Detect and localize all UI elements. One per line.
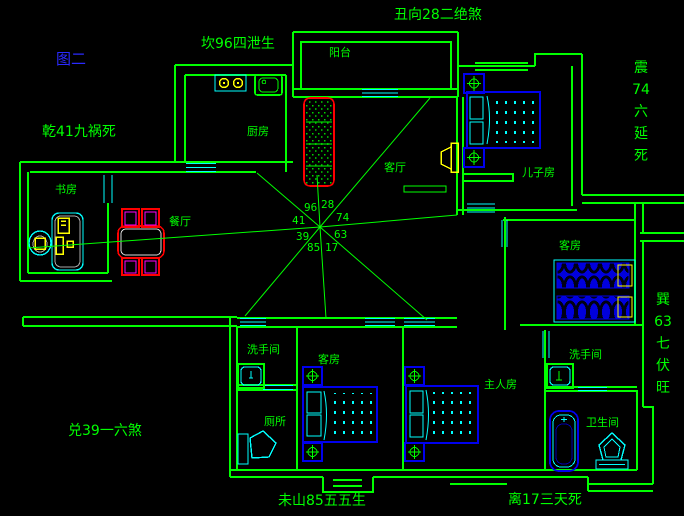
- room-label-study: 书房: [55, 184, 77, 196]
- dining-table: [118, 226, 164, 258]
- annotation-kan: 坎96四泄生: [201, 37, 275, 52]
- annotation-qian: 乾41九祸死: [42, 125, 116, 140]
- annotation-zhen: 震 74 六 延 死: [632, 57, 650, 167]
- room-label-living: 客厅: [384, 162, 406, 174]
- nightstand: [464, 148, 484, 167]
- kitchen-sink: [255, 75, 282, 95]
- room-label-balcony: 阳台: [329, 47, 351, 59]
- twin-beds-guest-right: [554, 260, 635, 322]
- room-label-toilet: 厕所: [264, 416, 286, 428]
- room-label-bathroom: 卫生间: [586, 417, 619, 429]
- bed-son: [467, 92, 540, 148]
- desk-chair: [29, 231, 51, 255]
- compass-number-ne: 28: [321, 198, 334, 211]
- annotation-dui: 兑39一六煞: [68, 424, 142, 439]
- nightstand: [303, 367, 322, 385]
- annotation-chou: 丑向28二绝煞: [394, 8, 482, 23]
- room-label-washroom-left: 洗手间: [247, 344, 280, 356]
- washbasin: [547, 364, 573, 388]
- tv: [441, 143, 458, 172]
- bed-master: [406, 386, 478, 443]
- stove: [215, 75, 246, 91]
- sofa: [304, 98, 334, 186]
- room-label-washroom-right: 洗手间: [569, 349, 602, 361]
- bathtub: [550, 411, 578, 471]
- room-label-guest-right: 客房: [559, 240, 581, 252]
- compass-number-sse: 17: [325, 241, 338, 254]
- room-label-dining: 餐厅: [169, 216, 191, 228]
- desk: [52, 213, 83, 270]
- room-label-son: 儿子房: [522, 167, 555, 179]
- figure-title: 图二: [56, 52, 86, 68]
- toilet: [238, 431, 276, 464]
- nightstand: [303, 443, 322, 461]
- toilet: [596, 433, 628, 469]
- bed-guest-bottom: [303, 387, 377, 442]
- nightstand: [405, 443, 424, 461]
- room-label-master: 主人房: [484, 379, 517, 391]
- annotation-wei: 未山85五五生: [278, 494, 366, 509]
- room-label-kitchen: 厨房: [247, 126, 269, 138]
- compass-number-nw: 96: [304, 201, 317, 214]
- room-label-guest-bottom: 客房: [318, 354, 340, 366]
- compass-number-e: 74: [336, 211, 349, 224]
- tv-stand: [404, 186, 446, 192]
- compass-number-se: 63: [334, 228, 347, 241]
- floorplan-canvas: 图二 坎96四泄生 丑向28二绝煞 乾41九祸死 兑39一六煞 未山85五五生 …: [0, 0, 684, 516]
- annotation-li: 离17三天死: [508, 493, 582, 508]
- nightstand: [405, 367, 424, 385]
- nightstand: [464, 74, 484, 93]
- annotation-xun: 巽 63 七 伏 旺: [654, 289, 672, 399]
- compass-number-ssw: 85: [307, 241, 320, 254]
- compass-number-w: 41: [292, 214, 305, 227]
- dining-chairs: [122, 209, 159, 275]
